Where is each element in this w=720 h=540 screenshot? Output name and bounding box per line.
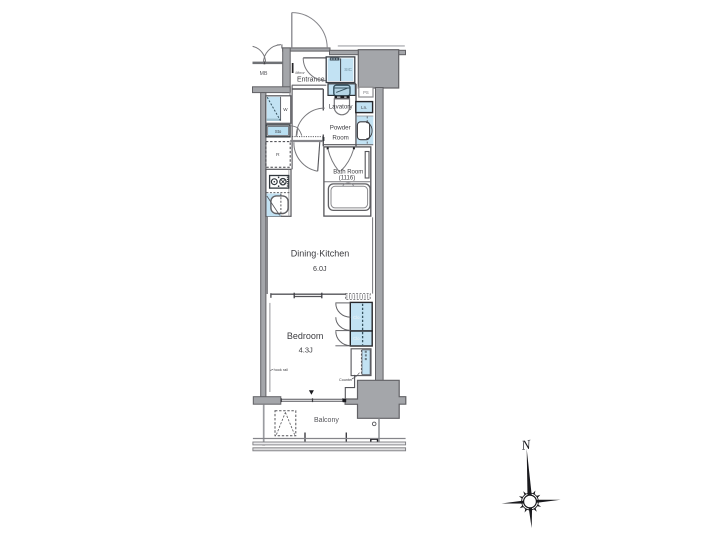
svg-text:Powder: Powder	[330, 125, 351, 132]
svg-text:Sto: Sto	[275, 129, 282, 134]
svg-text:Balcony: Balcony	[314, 417, 339, 424]
svg-text:PS: PS	[363, 90, 369, 95]
svg-text:Ln.: Ln.	[361, 105, 367, 110]
svg-text:W: W	[283, 107, 288, 112]
svg-text:hook rail: hook rail	[274, 368, 288, 372]
svg-text:MB: MB	[260, 71, 268, 77]
svg-text:(1116): (1116)	[339, 176, 355, 182]
svg-text:Clo.: Clo.	[353, 336, 361, 341]
svg-text:6.0J: 6.0J	[313, 264, 327, 273]
svg-text:Clo.: Clo.	[353, 315, 361, 320]
svg-text:4.3J: 4.3J	[299, 346, 313, 355]
svg-text:R: R	[276, 152, 280, 158]
svg-text:Lavatory: Lavatory	[329, 104, 354, 111]
svg-text:Bath Room: Bath Room	[333, 170, 363, 176]
svg-text:Mirror: Mirror	[295, 71, 305, 75]
svg-text:Bedroom: Bedroom	[287, 331, 324, 341]
svg-text:SIC: SIC	[344, 67, 352, 72]
svg-text:Room: Room	[332, 135, 349, 142]
svg-text:Counter: Counter	[339, 378, 353, 382]
svg-text:Dining·Kitchen: Dining·Kitchen	[291, 248, 350, 258]
